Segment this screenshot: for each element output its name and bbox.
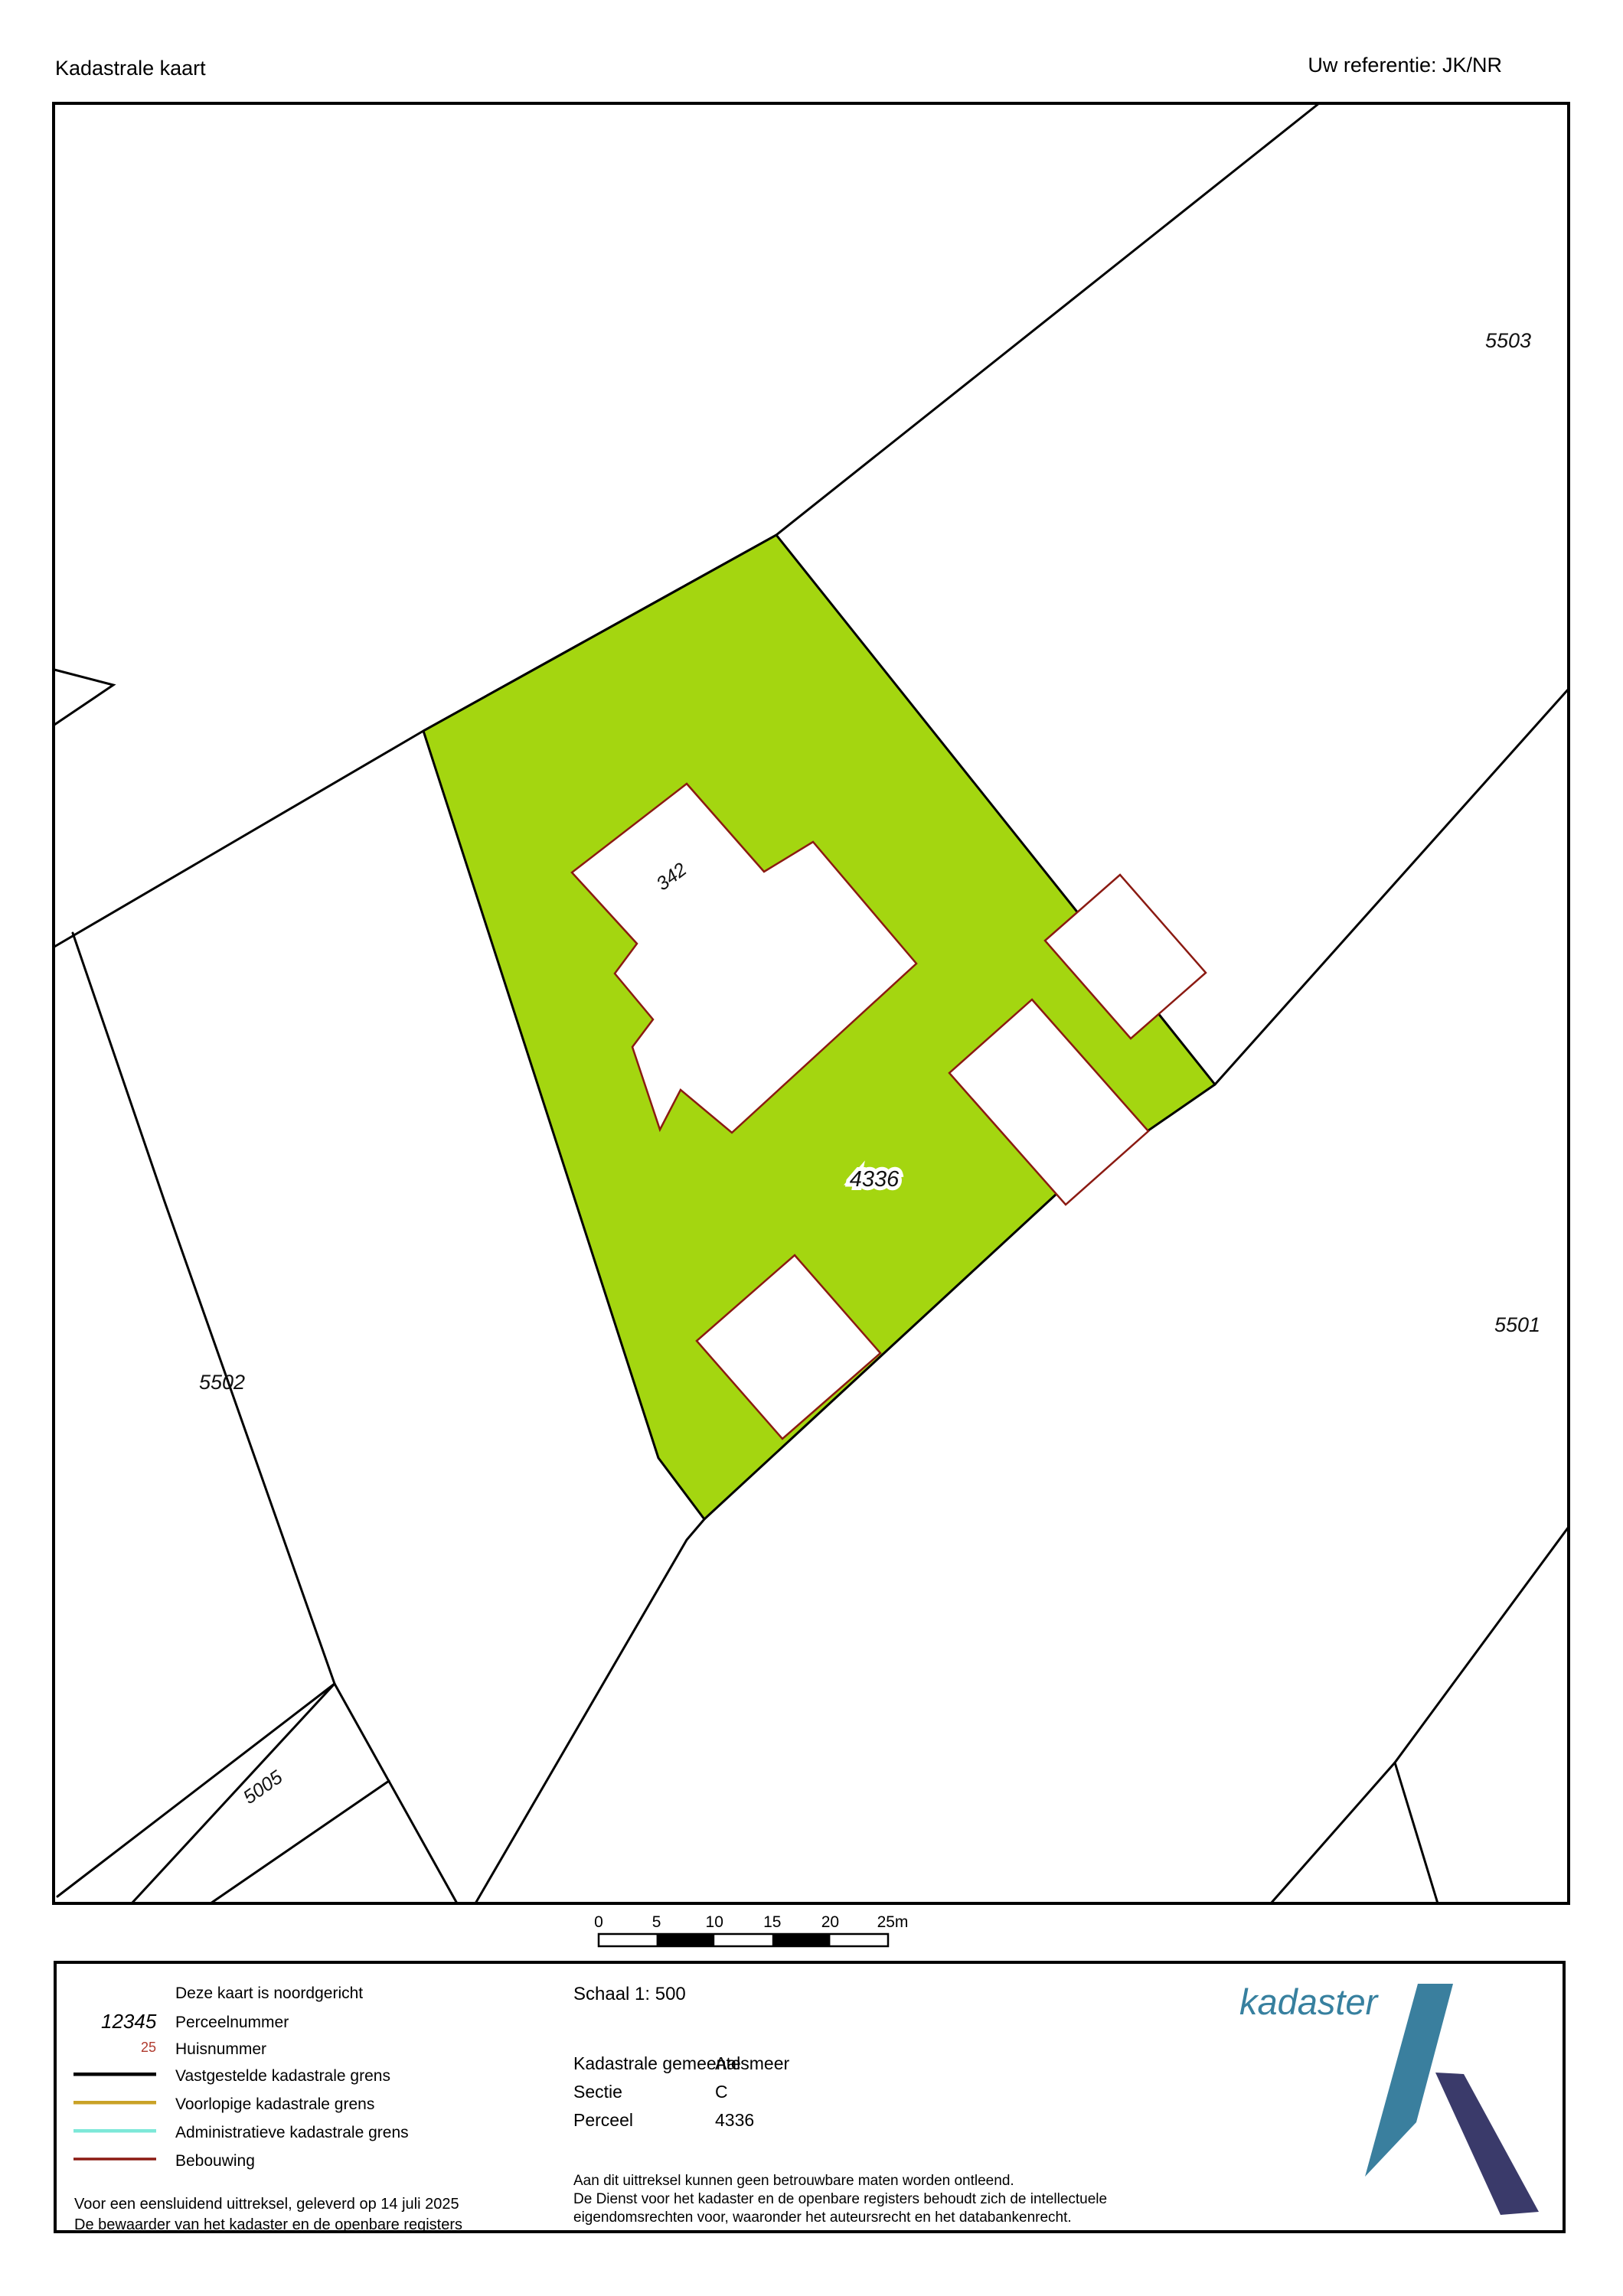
scale-tick-25m: 25m [877, 1913, 909, 1931]
kadaster-logo-blade [1365, 1984, 1453, 2177]
kadastrale-kaart-page: Kadastrale kaart Uw referentie: JK/NR [0, 0, 1623, 2296]
scale-tick-0: 0 [594, 1913, 603, 1931]
scale-bar-segment [657, 1934, 715, 1946]
scale-tick-15: 15 [763, 1913, 781, 1931]
parcel-label-5501: 5501 [1494, 1313, 1540, 1336]
legend-voorlopige-label: Voorlopige kadastrale grens [175, 2095, 374, 2114]
legend-bebouwing-label: Bebouwing [175, 2152, 255, 2170]
footer-box: kadaster Deze kaart is noordgericht 1234… [54, 1961, 1566, 2233]
legend-administratieve-label: Administratieve kadastrale grens [175, 2124, 409, 2142]
cadastral-map: 5503 5502 5501 5005 4336 342 0 5 10 15 2… [0, 0, 1623, 1959]
legend-huisnummer-sample: 25 [101, 2038, 156, 2056]
legend-perceelnummer-label: Perceelnummer [175, 2014, 289, 2032]
swatch-line [73, 2101, 156, 2105]
disclaimer-line-2: De Dienst voor het kadaster en de openba… [573, 2190, 1107, 2209]
delivery-line-2: De bewaarder van het kadaster en de open… [74, 2216, 462, 2234]
legend-vastgestelde-label: Vastgestelde kadastrale grens [175, 2067, 390, 2086]
detail-perceel-label: Perceel [573, 2110, 633, 2131]
detail-sectie-label: Sectie [573, 2082, 622, 2102]
kadaster-logo-bar [1435, 2073, 1539, 2215]
swatch-line [73, 2073, 156, 2076]
scale-tick-10: 10 [706, 1913, 723, 1931]
scale-tick-20: 20 [821, 1913, 839, 1931]
delivery-line-1: Voor een eensluidend uittreksel, gelever… [74, 2196, 459, 2213]
parcel-label-5502: 5502 [199, 1371, 245, 1394]
kadaster-logo-text: kadaster [1239, 1981, 1380, 2022]
detail-gemeente-value: Aalsmeer [715, 2053, 789, 2074]
disclaimer-line-1: Aan dit uittreksel kunnen geen betrouwba… [573, 2172, 1014, 2190]
legend-huisnummer-sample-text: 25 [141, 2040, 156, 2055]
scale-bar-segment [772, 1934, 831, 1946]
scale-text: Schaal 1: 500 [573, 1984, 686, 2005]
detail-sectie-value: C [715, 2082, 728, 2102]
legend-swatch-voorlopige [73, 2100, 156, 2105]
scale-bar: 0 5 10 15 20 25m [594, 1913, 908, 1946]
legend-huisnummer-label: Huisnummer [175, 2040, 266, 2059]
legend-perceelnummer-sample: 12345 [101, 2010, 156, 2033]
parcel-label-4336: 4336 [850, 1167, 900, 1192]
detail-perceel-value: 4336 [715, 2110, 754, 2131]
legend-swatch-bebouwing [73, 2157, 156, 2161]
scale-bar-outline [599, 1934, 888, 1946]
swatch-line [73, 2129, 156, 2133]
swatch-line [73, 2157, 156, 2161]
legend-north-note: Deze kaart is noordgericht [175, 1985, 363, 2003]
legend-swatch-administratieve [73, 2128, 156, 2133]
scale-tick-5: 5 [652, 1913, 661, 1931]
parcel-label-5503: 5503 [1485, 329, 1531, 352]
legend-swatch-vastgestelde [73, 2072, 156, 2076]
disclaimer-line-3: eigendomsrechten voor, waaronder het aut… [573, 2209, 1072, 2227]
